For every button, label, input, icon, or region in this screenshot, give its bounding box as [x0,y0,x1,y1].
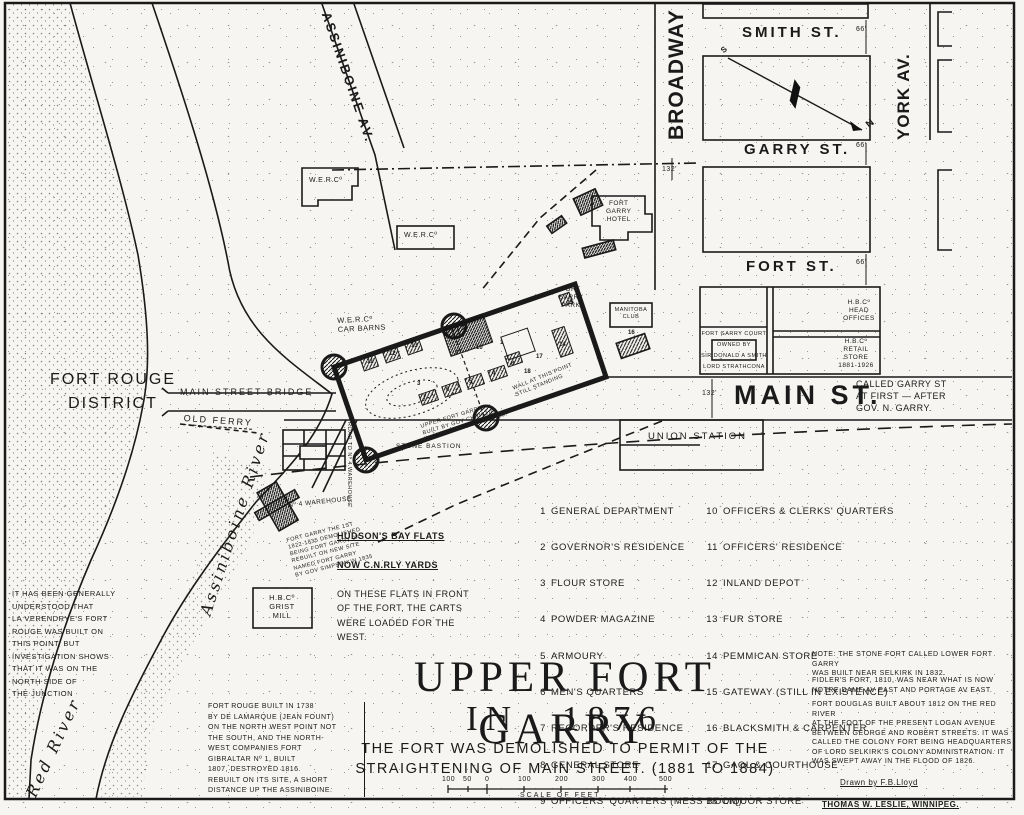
werco-2-label: W.E.R.Cº [404,232,437,241]
fort-garry-park-label: FORT GARRY PARK [558,286,584,310]
fort-num: 4 [492,371,495,377]
fort-num: 12 [389,351,396,357]
east-block-brackets [938,12,952,250]
fort-garry-court-label: FORT GARRY COURT OWNED BY SIR DONALD A S… [700,329,768,373]
fort-rouge-district-label: FORT ROUGE DISTRICT [48,368,178,416]
grist-mill-label: H.B.Cº GRIST MILL [258,593,306,620]
fort-interior [360,292,574,428]
map-canvas: SMITH ST. 66' GARRY ST. 66' FORT ST. 66'… [0,0,1024,815]
road-to-wharf-label: ROAD TO Nº 4 WAREHOUSE [345,422,352,507]
fort-num: 13 [411,343,418,349]
credit-author: THOMAS W. LESLIE, WINNIPEG. [822,799,959,810]
fort-num: 3 [417,381,420,387]
fort-num: 15 [567,300,574,306]
fort-num: 16 [628,330,635,336]
credits: Drawn by F.B.Lloyd THOMAS W. LESLIE, WIN… [822,766,959,815]
compass-icon [728,58,862,131]
fort-num: 8 [511,361,514,367]
dim-main: 132' [702,390,717,399]
note-fort-douglas: FORT DOUGLAS BUILT ABOUT 1812 ON THE RED… [812,700,1014,767]
werco-building-1 [302,168,358,206]
fort-num: 10 [476,345,483,351]
main-st-note: CALLED GARRY ST AT FIRST — AFTER GOV. N.… [856,378,947,414]
fort-num: 6 [446,387,449,393]
scale-tick: 100 [442,776,455,785]
scale-caption: SCALE OF FEET [520,792,600,801]
note-fidlers-fort: FIDLER'S FORT, 1810, WAS NEAR WHAT IS NO… [812,676,1014,695]
blacksmith-building [616,334,650,359]
manitoba-club-label: MANITOBA CLUB [613,307,649,320]
scale-tick: 300 [592,776,605,785]
hb-flats-body: ON THESE FLATS IN FRONT OF THE FORT. THE… [337,587,469,645]
hbc-head-offices-label: H.B.Cº HEAD OFFICES [840,299,878,323]
scale-tick: 0 [485,776,489,785]
street-garry: GARRY ST. [744,141,850,159]
scale-tick: 100 [518,776,531,785]
bridge-label: MAIN STREET BRIDGE [180,387,313,398]
fort-num: 2 [464,328,467,334]
scale-tick: 50 [463,776,472,785]
scale-tick: 200 [555,776,568,785]
hbc-retail-store-label: H.B.Cº RETAIL STORE 1881-1926 [834,338,878,370]
block-garry-fort [703,167,870,252]
block-above-smith [703,4,868,18]
street-fort: FORT ST. [746,258,837,276]
fort-num: 17 [536,354,543,360]
stone-bastion-label: STONE BASTION [396,443,462,451]
page-title-year: IN 1876 [340,698,790,741]
werco-1-label: W.E.R.Cº [309,177,342,186]
scale-tick: 500 [659,776,672,785]
union-station-label: UNION STATION [648,431,747,443]
fort-num: 9 [455,350,458,356]
dim-garry-west: 132' [662,166,677,175]
fort-num: 14 [559,342,566,348]
fort-garry-hotel-label: FORT GARRY HOTEL [606,200,632,224]
car-barns-label: W.E.R.Cº CAR BARNS [337,313,386,334]
fort-num: 7 [423,395,426,401]
reserve-boundary [332,163,698,170]
fort-num: 18 [524,369,531,375]
block-smith-garry [703,56,870,140]
verendrye-note: IT HAS BEEN GENERALLY UNDERSTOOD THAT LA… [12,588,144,701]
note-lower-fort-garry: NOTE: THE STONE FORT CALLED LOWER FORT G… [812,650,1014,679]
credit-drawn-by: Drawn by F.B.Lloyd [840,777,959,788]
fort-num: 11 [367,359,373,365]
legend-item: 12INLAND DEPOT [705,576,894,593]
street-smith: SMITH ST. [742,24,842,42]
fort-num: 1 [500,340,503,346]
street-york: YORK AV. [894,53,915,140]
scale-tick: 400 [624,776,637,785]
dim-fort: 66' [856,259,867,268]
legend-item: 13FUR STORE [705,612,894,629]
dim-smith: 66' [856,26,867,35]
legend-item: 11OFFICERS' RESIDENCE [705,540,894,557]
street-broadway: BROADWAY [664,9,690,140]
page-subtitle: THE FORT WAS DEMOLISHED TO PERMIT OF THE… [345,740,785,779]
fort-num: 5 [469,379,472,385]
dim-garry: 66' [856,142,867,151]
legend-item: 10OFFICERS & CLERKS' QUARTERS [705,504,894,521]
old-trail [480,170,596,292]
